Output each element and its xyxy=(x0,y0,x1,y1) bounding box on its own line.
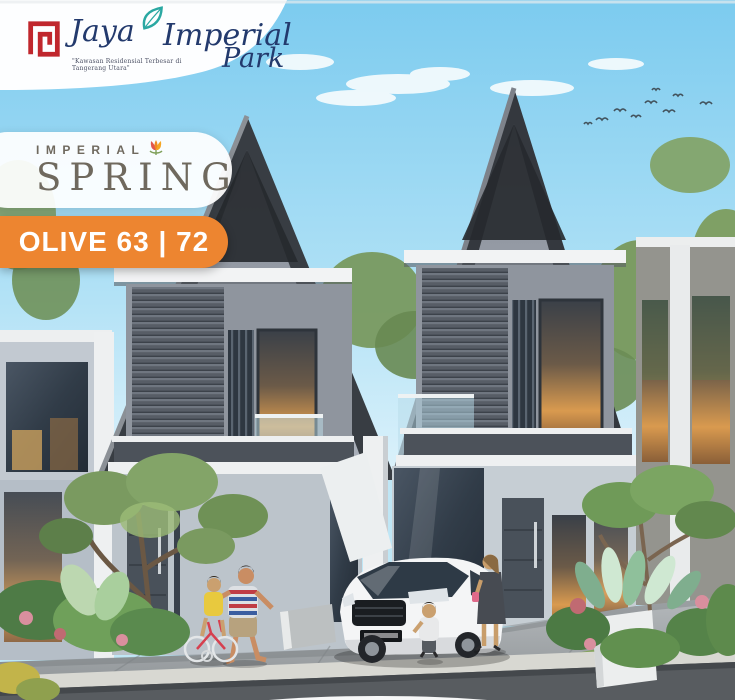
shirt xyxy=(419,617,439,641)
handbag xyxy=(472,592,479,602)
brand-logo: Jaya Imperial Park "Kawasan Residensial … xyxy=(24,16,290,96)
poster: Jaya Imperial Park "Kawasan Residensial … xyxy=(0,0,735,700)
front-door xyxy=(502,498,544,618)
fascia-band xyxy=(114,268,352,282)
olive-type-badge: OLIVE 63 | 72 xyxy=(0,216,228,268)
house-rendering xyxy=(0,0,735,700)
planter-block xyxy=(280,604,336,650)
tulip-icon xyxy=(147,139,165,156)
imperial-spring-badge: IMPERIAL SPRING xyxy=(0,132,232,208)
canopy-fascia xyxy=(396,455,636,466)
flowers xyxy=(116,634,128,646)
flowers xyxy=(584,638,596,650)
yellow-top xyxy=(204,592,223,616)
brand-tagline: "Kawasan Residensial Terbesar di Tangera… xyxy=(72,58,202,72)
slatted-window xyxy=(228,330,254,442)
dress xyxy=(477,572,506,624)
slatted-window xyxy=(512,300,536,432)
flowers xyxy=(570,598,586,614)
olive-type-label: OLIVE 63 | 72 xyxy=(19,226,209,258)
brand-word-jaya: Jaya xyxy=(70,14,135,49)
red-maze-logo-icon xyxy=(24,16,64,62)
series-eyebrow: IMPERIAL xyxy=(36,143,145,157)
flowers xyxy=(695,595,709,609)
flowers xyxy=(54,628,66,640)
series-name: SPRING xyxy=(36,159,232,198)
flowers xyxy=(19,611,33,625)
door-handle xyxy=(534,522,537,568)
grille xyxy=(352,600,406,626)
fascia-band xyxy=(404,250,626,263)
brand-word-park: Park xyxy=(222,43,284,74)
shorts xyxy=(229,615,257,637)
upper-window xyxy=(540,300,602,442)
